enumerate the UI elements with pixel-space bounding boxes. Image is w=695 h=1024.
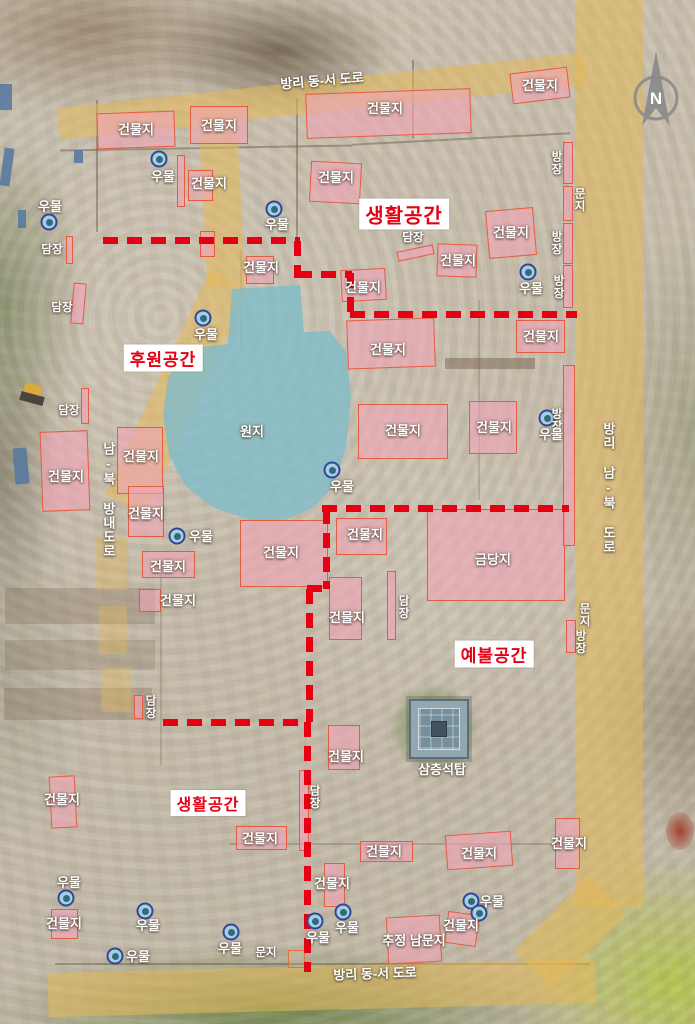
building-site-label: 건물지 (48, 470, 84, 484)
well-label: 우물 (480, 895, 504, 909)
building-site-label: 건물지 (523, 330, 559, 344)
well-marker (223, 924, 240, 941)
wall-segment (563, 223, 573, 264)
trench-mark (296, 98, 298, 240)
building-site (139, 589, 161, 612)
gate-label: 문지 (573, 188, 585, 213)
building-site-label: 건물지 (367, 102, 403, 116)
zone-boundary-line (323, 509, 330, 589)
building-site-label: 건물지 (242, 832, 278, 846)
road-remnant-patch (101, 668, 131, 712)
building-site-label: 건물지 (443, 919, 479, 933)
well-marker (335, 904, 352, 921)
well-label: 우물 (57, 876, 81, 890)
building-site-label: 건물지 (243, 261, 279, 275)
road-label: 방리 남-북 도로 (601, 422, 615, 554)
compass-n-label: N (650, 89, 662, 108)
building-site-label: 건물지 (329, 611, 365, 625)
well-label: 우물 (218, 942, 242, 956)
building-site-label: 건물지 (370, 343, 406, 357)
wall-segment (563, 265, 573, 308)
wall-label: 담장 (58, 405, 79, 417)
wall-segment (563, 365, 575, 546)
building-site-label: 건물지 (191, 177, 227, 191)
well-label: 우물 (330, 480, 354, 494)
compass-north-arrow: N (630, 48, 682, 140)
well-label: 우물 (194, 328, 218, 342)
wall-segment (177, 155, 185, 207)
wall-label: 담장 (51, 302, 72, 314)
wall-label: 방장 (550, 231, 562, 256)
building-site-label: 건물지 (128, 507, 164, 521)
wall-segment (134, 695, 143, 719)
trench-mark (445, 358, 535, 369)
zone-label: 생활공간 (171, 790, 246, 816)
zone-boundary-line (322, 505, 569, 512)
building-site (329, 577, 362, 640)
well-marker (520, 264, 537, 281)
wall-segment (563, 186, 573, 221)
zone-boundary-line (306, 589, 313, 722)
wall-label: 담장 (402, 232, 423, 244)
excavation-site-map: N 건물지건물지건물지건물지건물지건물지건물지건물지건물지건물지건물지건물지건물… (0, 0, 695, 1024)
well-marker (58, 890, 75, 907)
building-site-label: 건물지 (461, 847, 497, 861)
well-label: 우물 (539, 428, 563, 442)
well-label: 우물 (151, 170, 175, 184)
well-marker (324, 462, 341, 479)
building-site-label: 건물지 (118, 123, 154, 137)
gate-label: 문지 (255, 947, 276, 959)
zone-label: 후원공간 (124, 345, 203, 372)
pagoda-label: 삼층석탑 (418, 763, 466, 777)
well-label: 우물 (265, 218, 289, 232)
well-label: 우물 (335, 921, 359, 935)
blue-tarp (12, 447, 29, 484)
building-site-label: 건물지 (46, 917, 82, 931)
building-site-label: 건물지 (522, 79, 558, 93)
building-site-label: 건물지 (201, 119, 237, 133)
wall-label: 담장 (41, 244, 62, 256)
well-label: 우물 (38, 200, 62, 214)
well-label: 우물 (136, 919, 160, 933)
gate-label: 문지 (578, 603, 590, 628)
building-site-label: 건물지 (345, 281, 381, 295)
wall-label: 담장 (144, 695, 156, 720)
building-site-label: 건물지 (385, 424, 421, 438)
zone-boundary-line (103, 237, 300, 244)
wall-segment (200, 231, 215, 257)
wall-label: 방장 (574, 630, 586, 655)
zone-boundary-line (163, 719, 309, 726)
building-site-label: 건물지 (366, 845, 402, 859)
road-remnant-patch (99, 606, 127, 654)
building-site-label: 건물지 (123, 450, 159, 464)
road-label: 방리 동-서 도로 (333, 966, 417, 983)
building-site-label: 건물지 (44, 793, 80, 807)
building-site-label: 추정 남문지 (382, 934, 445, 948)
blue-tarp (0, 84, 12, 110)
blue-tarp (18, 210, 26, 228)
road-label: 남-북 방내도로 (101, 442, 115, 558)
building-site-label: 건물지 (493, 226, 529, 240)
building-site-label: 건물지 (440, 254, 476, 268)
wall-segment (81, 388, 89, 424)
well-label: 우물 (126, 950, 150, 964)
well-label: 우물 (519, 282, 543, 296)
well-marker (151, 151, 168, 168)
building-site-label: 건물지 (551, 837, 587, 851)
pond-label: 원지 (240, 425, 264, 439)
well-marker (107, 948, 124, 965)
well-label: 우물 (189, 530, 213, 544)
building-site-label: 건물지 (476, 421, 512, 435)
trench-mark (5, 640, 155, 670)
trench-mark (478, 300, 480, 500)
building-site-label: 건물지 (160, 594, 196, 608)
blue-tarp (74, 150, 83, 163)
zone-boundary-line (297, 271, 352, 278)
building-site-label: 건물지 (263, 546, 299, 560)
gate-site-box (288, 950, 305, 968)
well-marker (266, 201, 283, 218)
building-site-label: 건물지 (150, 560, 186, 574)
well-marker (169, 528, 186, 545)
building-site-label: 건물지 (318, 171, 354, 185)
wall-label: 방장 (550, 151, 562, 176)
stone-pagoda (409, 699, 469, 759)
well-marker (307, 913, 324, 930)
building-site-label: 건물지 (328, 750, 364, 764)
well-marker (195, 310, 212, 327)
wall-segment (66, 236, 73, 264)
wall-segment (387, 571, 396, 640)
building-site-label: 금당지 (475, 553, 511, 567)
pagoda-core (431, 721, 447, 737)
zone-label: 생활공간 (359, 199, 449, 230)
well-label: 우물 (306, 931, 330, 945)
wall-label: 담장 (308, 785, 320, 810)
building-site-label: 건물지 (314, 877, 350, 891)
soil-pile (666, 812, 694, 850)
well-marker (41, 214, 58, 231)
trench-mark (5, 588, 155, 624)
well-marker (137, 903, 154, 920)
building-site-label: 건물지 (347, 528, 383, 542)
zone-label: 예불공간 (455, 641, 534, 668)
pagoda-scaffold (418, 708, 460, 750)
wall-segment (563, 142, 573, 184)
wall-label: 담장 (397, 595, 409, 620)
zone-boundary-line (350, 311, 577, 318)
wall-label: 방장 (552, 275, 564, 300)
